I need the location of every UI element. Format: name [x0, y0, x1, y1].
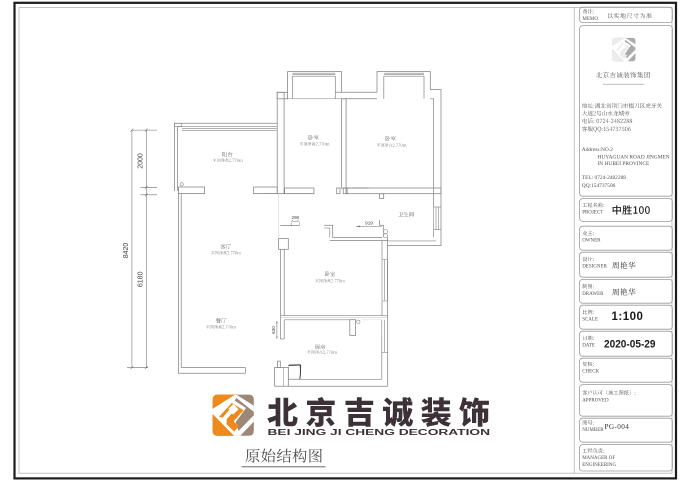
svg-text:919: 919 [365, 221, 373, 226]
svg-text:DATE: DATE [582, 344, 595, 349]
svg-text:PG-004: PG-004 [605, 423, 630, 431]
svg-text:2020-05-29: 2020-05-29 [604, 338, 656, 350]
svg-text:Address:NO.2: Address:NO.2 [582, 147, 613, 153]
svg-text:6180: 6180 [137, 271, 144, 287]
svg-text:2000: 2000 [137, 153, 144, 169]
svg-text:SCALE: SCALE [582, 318, 598, 323]
svg-text:BEI JING JI CHENG DECORATION: BEI JING JI CHENG DECORATION [268, 428, 491, 437]
svg-text:1:100: 1:100 [612, 311, 644, 323]
svg-text:DRAWER: DRAWER [582, 292, 604, 297]
svg-text:CHECK: CHECK [582, 370, 599, 375]
svg-text:ENGINEERING: ENGINEERING [582, 463, 616, 468]
svg-text:630: 630 [271, 326, 276, 334]
svg-text:PROJECT: PROJECT [582, 211, 603, 216]
svg-text:MEMO: MEMO [582, 17, 598, 22]
svg-text:8420: 8420 [123, 243, 130, 259]
svg-text:APPROVED: APPROVED [582, 399, 609, 404]
svg-text:NUMBER: NUMBER [582, 428, 604, 433]
svg-text:HUYAGUAN ROAD JINGMEN: HUYAGUAN ROAD JINGMEN [598, 154, 670, 160]
svg-text:MANAGER OF: MANAGER OF [582, 456, 615, 461]
svg-text:OWNER: OWNER [582, 239, 601, 244]
svg-text:DESIGNER: DESIGNER [582, 265, 607, 270]
svg-text:298: 298 [292, 215, 300, 220]
svg-text:QQ:154737506: QQ:154737506 [582, 183, 616, 189]
svg-text:IN HUBEI PROVINCE: IN HUBEI PROVINCE [598, 161, 651, 167]
svg-text:TEL: 0724-2482288: TEL: 0724-2482288 [582, 175, 626, 181]
